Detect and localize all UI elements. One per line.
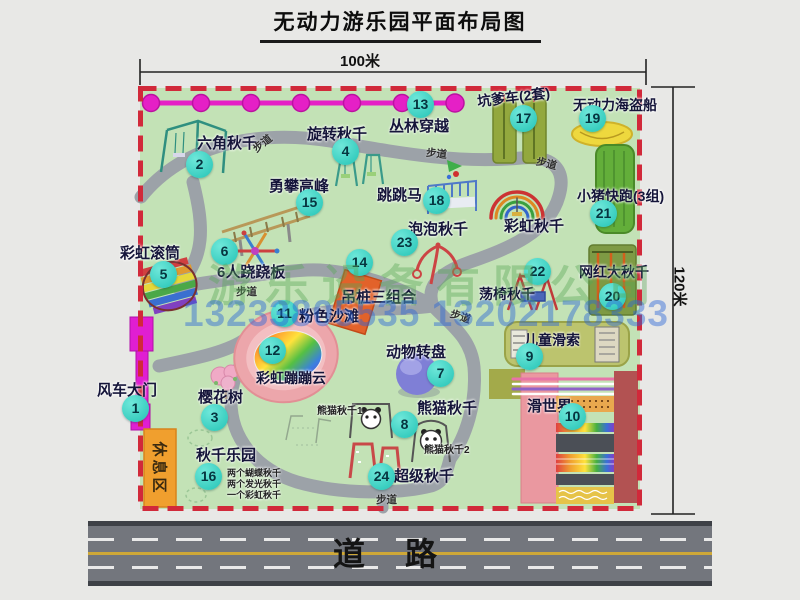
label-jumping-horse: 跳跳马: [377, 184, 422, 205]
badge-12: 12: [259, 337, 286, 364]
rest-area-label: 休息区: [150, 439, 171, 499]
label-super-swing: 超级秋千: [394, 465, 454, 486]
label-jungle-crossing: 丛林穿越: [389, 115, 449, 136]
badge-17: 17: [510, 105, 537, 132]
badge-15: 15: [296, 189, 323, 216]
watermark-phone: 13233805535 13202178333: [183, 293, 669, 335]
badge-24: 24: [368, 463, 395, 490]
label-rainbow-cloud: 彩虹蹦蹦云: [256, 368, 326, 388]
height-dimension-label: 120米: [670, 262, 691, 312]
badge-18: 18: [423, 187, 450, 214]
label-swing-park: 秋千乐园: [196, 444, 256, 465]
width-dimension-label: 100米: [340, 50, 380, 71]
label-rainbow-roller: 彩虹滚筒: [120, 242, 180, 263]
label-hexagon-swing: 六角秋千: [197, 132, 257, 153]
badge-13: 13: [407, 91, 434, 118]
label-panda-swing-1: 熊猫秋千1: [317, 402, 363, 417]
badge-7: 7: [427, 360, 454, 387]
badge-1: 1: [122, 395, 149, 422]
label-bubble-swing: 泡泡秋千: [408, 218, 468, 239]
badge-16: 16: [195, 463, 222, 490]
badge-19: 19: [579, 105, 606, 132]
road: 道路: [88, 521, 712, 586]
label-animal-carousel: 动物转盘: [386, 341, 446, 362]
label-rainbow-swing: 彩虹秋千: [504, 215, 564, 236]
badge-2: 2: [186, 151, 213, 178]
badge-5: 5: [150, 261, 177, 288]
label-panda-swing-2: 熊猫秋千2: [424, 441, 470, 456]
badge-21: 21: [590, 200, 617, 227]
label-cherry-tree: 樱花树: [198, 386, 243, 407]
playground-layout-map: 无动力游乐园平面布局图 100米 120米 风车大门 六角秋千 樱花树 旋转秋千…: [0, 0, 800, 600]
walkway-label-6: 步道: [376, 492, 397, 507]
badge-10: 10: [559, 403, 586, 430]
road-label: 道路: [88, 529, 682, 575]
page-title: 无动力游乐园平面布局图: [0, 6, 800, 43]
badge-4: 4: [332, 138, 359, 165]
swing-park-item-3: 一个彩虹秋千: [227, 488, 281, 501]
badge-9: 9: [516, 343, 543, 370]
walkway-label-2: 步道: [425, 145, 447, 162]
label-piggy-run: 小猪快跑(3组): [577, 186, 664, 206]
label-panda-swing: 熊猫秋千: [417, 397, 477, 418]
badge-8: 8: [391, 411, 418, 438]
badge-3: 3: [201, 404, 228, 431]
